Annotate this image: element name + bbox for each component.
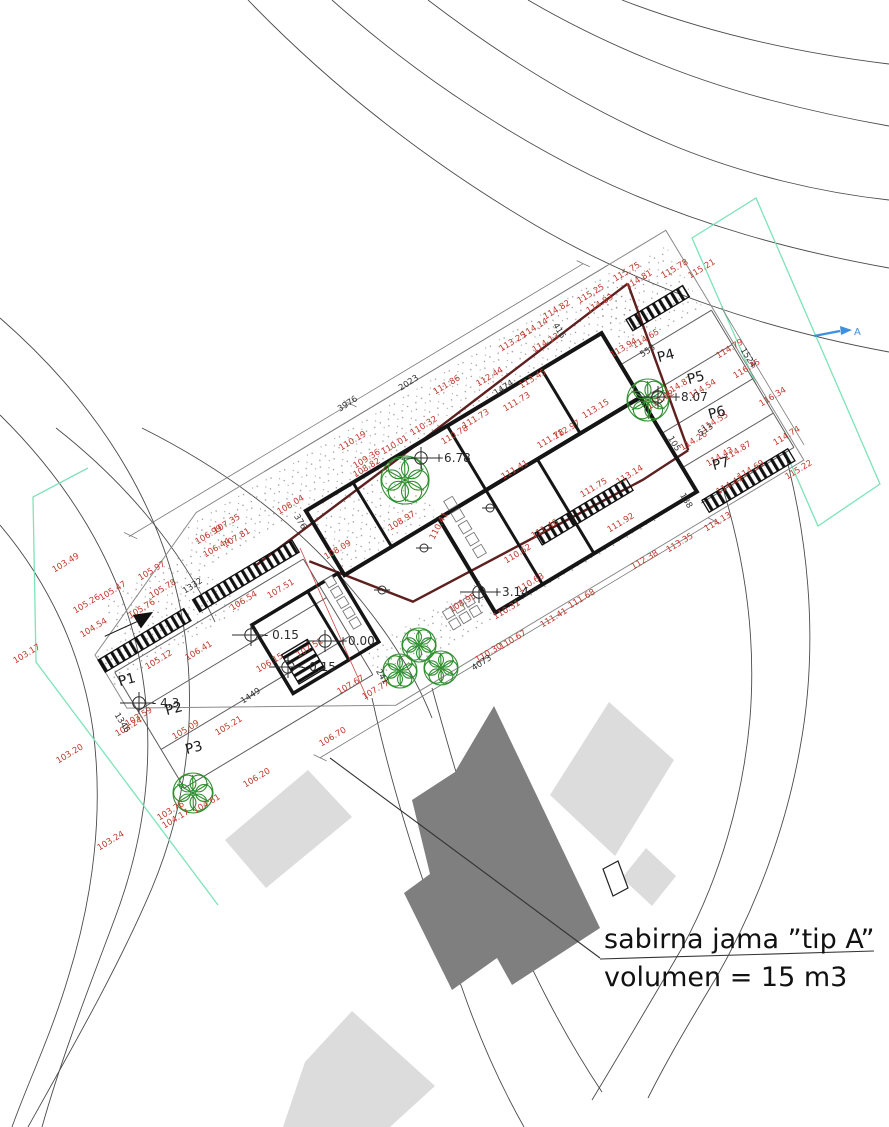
elevation-label: 106.54 (229, 589, 260, 613)
site-plan-drawing: A (0, 0, 889, 1127)
dimension-label: 1449 (239, 686, 263, 706)
elevation-label: 106.20 (242, 766, 273, 790)
parking-stall-label: P3 (184, 738, 205, 758)
callout-volume: volumen = 15 m3 (604, 962, 847, 993)
light-building (283, 1011, 435, 1127)
section-marker: A (814, 326, 861, 338)
level-marker-label: - 0.15 (264, 628, 299, 642)
dimension-label: 3976 (336, 394, 360, 414)
light-building (550, 702, 674, 856)
sabirna-jama-pit (603, 861, 628, 896)
level-marker-label: - 4.3 (152, 696, 179, 710)
level-marker-label: +6.78 (434, 451, 471, 465)
neighbour-buildings (225, 702, 676, 1127)
site-group (49, 209, 817, 835)
elevation-label: 111.68 (567, 587, 598, 611)
elevation-label: 116.34 (758, 385, 789, 409)
elevation-label: 112.38 (630, 548, 661, 572)
section-arrow-icon (840, 326, 852, 335)
elevation-label: 103.24 (96, 829, 127, 853)
site-plan-canvas: A (0, 0, 889, 1127)
level-marker-label: +3.14 (492, 585, 529, 599)
stipple-ground (62, 240, 785, 805)
section-line (814, 331, 840, 336)
elevation-label: 103.49 (51, 551, 82, 575)
tree-icon (424, 651, 458, 685)
elevation-label: 105.26 (72, 592, 103, 616)
light-building (225, 770, 352, 888)
elevation-label: 103.20 (55, 742, 86, 766)
elevation-label: 105.21 (214, 714, 245, 738)
level-marker-label: +8.07 (671, 390, 708, 404)
level-marker-label: +0.00 (338, 634, 375, 648)
elevation-label: 106.70 (318, 725, 349, 749)
elevation-label: 103.17 (12, 642, 43, 666)
light-building (622, 848, 676, 906)
level-marker-label: - 0.15 (301, 660, 336, 674)
dark-building (404, 706, 600, 990)
spot-level-icon (416, 544, 432, 552)
section-label: A (854, 327, 861, 338)
elevation-label: 104.54 (79, 616, 110, 640)
elevation-label: 114.13 (703, 510, 734, 534)
elevation-label: 107.51 (266, 577, 297, 601)
callout-title: sabirna jama ”tip A” (604, 924, 875, 955)
